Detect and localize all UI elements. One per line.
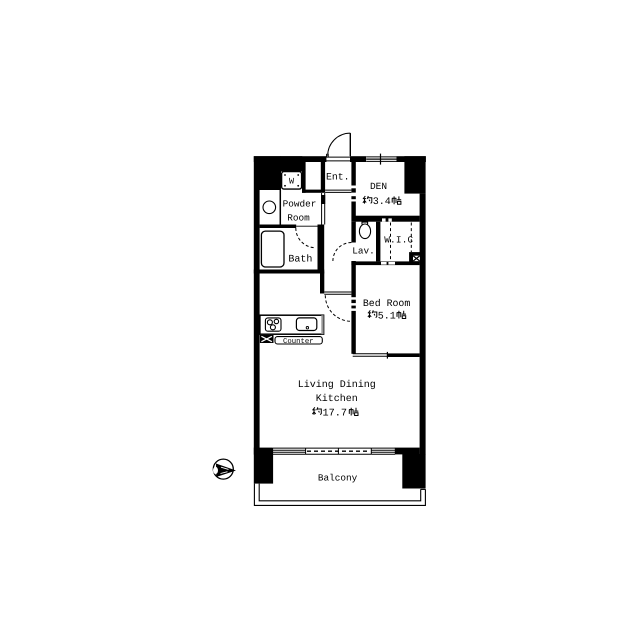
svg-text:Counter: Counter [283,338,314,346]
svg-text:Room: Room [287,213,310,224]
svg-text:W: W [289,177,295,187]
svg-text:Balcony: Balcony [318,472,358,483]
svg-text:3.4: 3.4 [373,197,391,208]
svg-text:Bath: Bath [288,253,312,265]
svg-text:DEN: DEN [370,181,387,192]
svg-text:Bed Room: Bed Room [363,298,410,309]
svg-text:Powder: Powder [283,198,317,209]
svg-text:Kitchen: Kitchen [316,393,358,405]
svg-text:Lav.: Lav. [352,245,375,256]
svg-text:17.7: 17.7 [323,409,347,420]
svg-text:Ent.: Ent. [326,171,350,182]
svg-text:W.I.C: W.I.C [384,234,413,245]
svg-text:5.1: 5.1 [378,312,396,323]
svg-text:Living Dining: Living Dining [298,379,376,391]
